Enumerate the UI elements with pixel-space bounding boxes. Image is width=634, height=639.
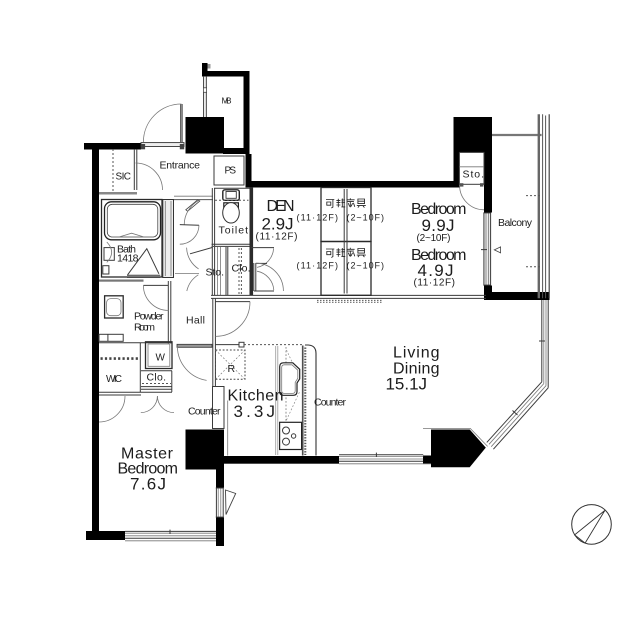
svg-text:3.3J: 3.3J xyxy=(234,402,276,421)
svg-text:7.6J: 7.6J xyxy=(130,475,166,494)
svg-text:Toilet: Toilet xyxy=(219,225,249,237)
svg-text:Living: Living xyxy=(393,345,440,362)
svg-text:Clo.: Clo. xyxy=(147,372,167,384)
svg-text:Balcony: Balcony xyxy=(498,217,533,229)
svg-text:(2~10F): (2~10F) xyxy=(347,213,385,223)
svg-text:(2~10F): (2~10F) xyxy=(417,233,451,244)
svg-text:(11·12F): (11·12F) xyxy=(256,232,298,243)
svg-text:Entrance: Entrance xyxy=(160,160,201,172)
svg-text:Counter: Counter xyxy=(314,397,347,409)
svg-text:(11·12F): (11·12F) xyxy=(297,261,339,271)
svg-text:Clo.: Clo. xyxy=(232,263,251,275)
svg-text:SIC: SIC xyxy=(116,172,132,183)
svg-text:15.1J: 15.1J xyxy=(386,375,428,394)
svg-text:R: R xyxy=(228,363,236,375)
svg-text:Sto.: Sto. xyxy=(206,267,225,279)
svg-text:Counter: Counter xyxy=(188,406,221,418)
svg-text:W: W xyxy=(156,353,166,364)
svg-text:MB: MB xyxy=(222,96,232,106)
svg-text:PS: PS xyxy=(225,166,237,177)
svg-text:Room: Room xyxy=(134,322,155,334)
svg-text:(11·12F): (11·12F) xyxy=(414,278,456,289)
svg-text:(11·12F): (11·12F) xyxy=(297,213,339,223)
svg-text:DEN: DEN xyxy=(267,198,295,215)
svg-text:Hall: Hall xyxy=(186,315,205,327)
svg-text:WIC: WIC xyxy=(106,374,122,385)
svg-text:Sto.: Sto. xyxy=(463,169,485,181)
svg-text:(2~10F): (2~10F) xyxy=(347,261,385,271)
svg-text:1418: 1418 xyxy=(117,253,139,265)
